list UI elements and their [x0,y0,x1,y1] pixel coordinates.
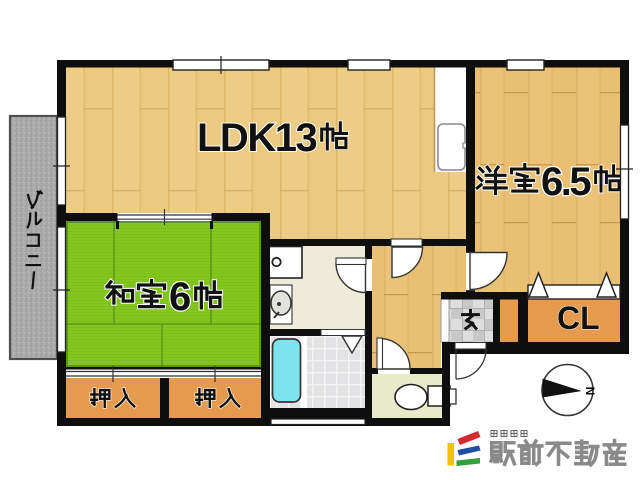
svg-text:CL: CL [557,300,600,336]
svg-text:6.5: 6.5 [541,160,591,204]
svg-text:N: N [583,387,597,396]
svg-text:LDK13: LDK13 [197,116,316,160]
svg-text:6: 6 [169,275,191,319]
